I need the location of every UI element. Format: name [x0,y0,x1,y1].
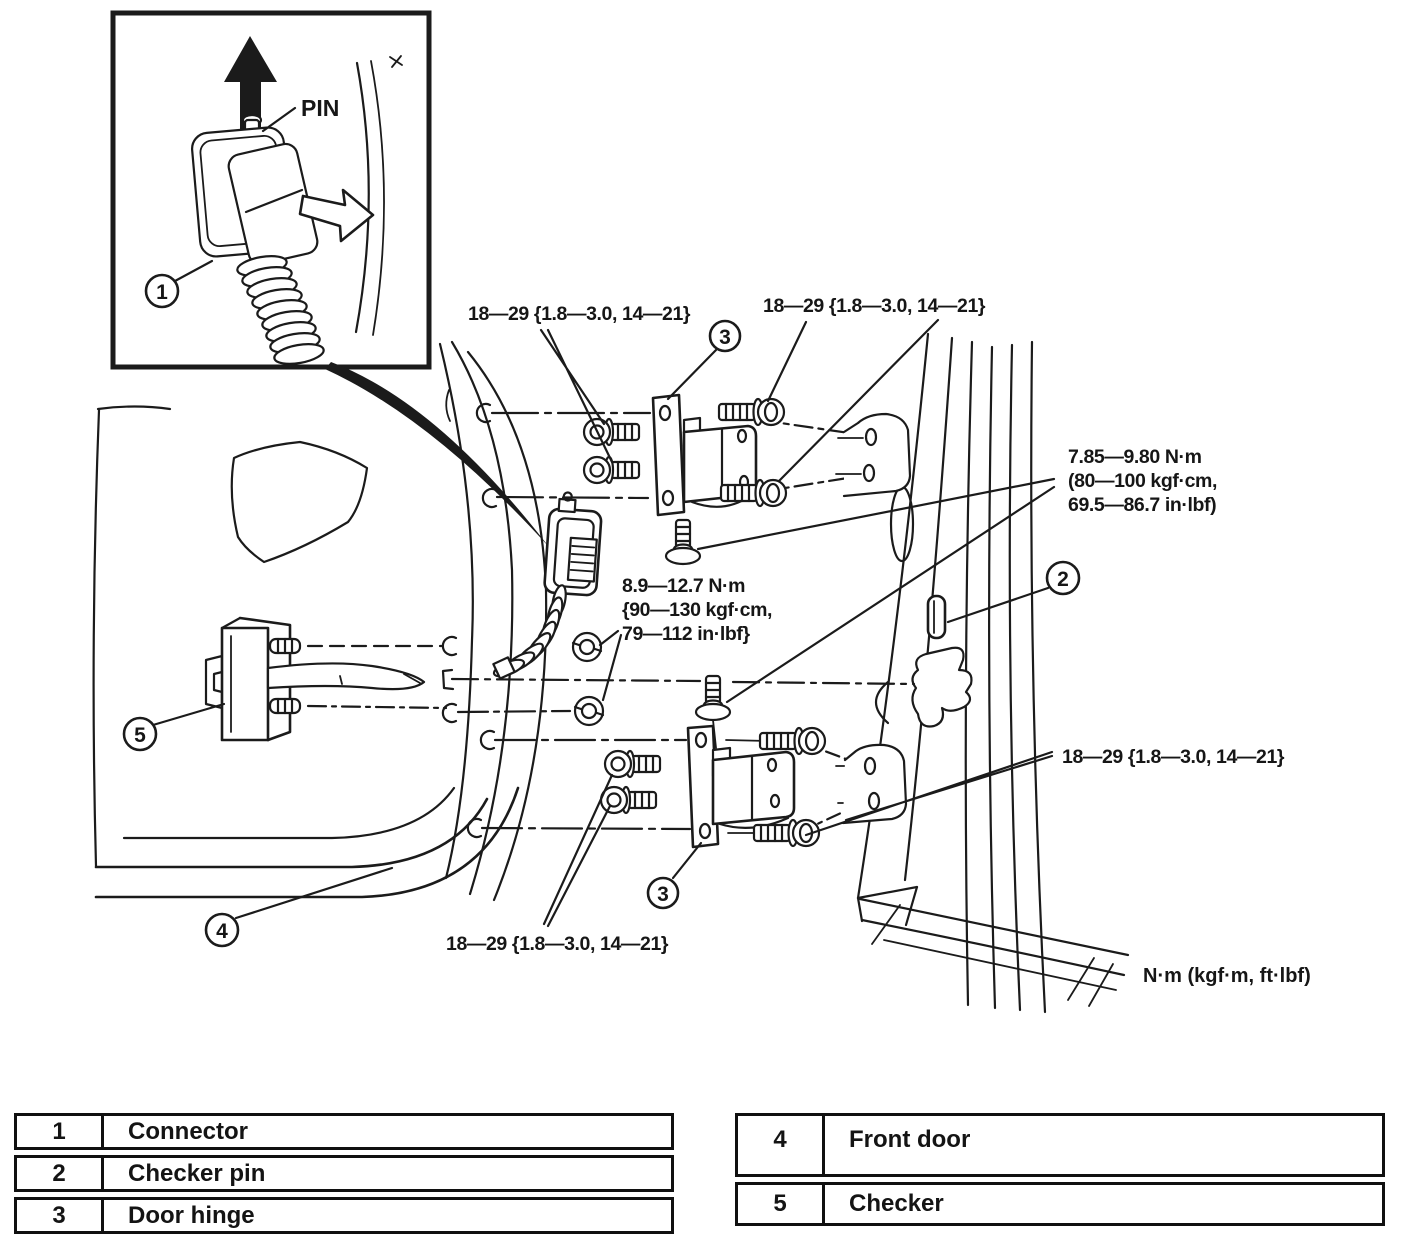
pillar-line [1031,342,1045,1012]
legend-row: 5 Checker [735,1182,1385,1226]
hinge-bolt-icon [605,751,660,777]
torque-upper-right: 18—29 {1.8—3.0, 14—21} [763,295,986,317]
checker-body [222,628,268,740]
callout-2-number: 2 [1057,568,1069,591]
door-hole-clip [443,704,456,722]
torque-checker-bolt-2: (80—100 kgf·cm, [1068,470,1217,492]
callout-leader [153,704,224,725]
checker-stud [270,639,300,653]
door-hole-clip [483,489,496,507]
tick-mark [390,56,402,67]
plate-hole [866,429,876,445]
checker-mount-bolt-icon [696,676,730,720]
pin-label: PIN [301,95,339,121]
hinge-hole [696,733,706,747]
bolt-axis-dashed [458,711,570,712]
legend-table-right: 4 Front door 5 Checker [735,1113,1385,1226]
callout-3-number: 3 [719,326,731,349]
door-face-arc [446,390,450,421]
checker-pin-drawing [928,596,945,638]
door-top-line [98,407,170,410]
callout-leader [236,868,392,918]
legend-item-label: Connector [104,1116,671,1147]
torque-checker-nut-2: {90—130 kgf·cm, [622,599,772,621]
legend-item-number: 4 [738,1116,825,1174]
checker-mount-bolt-icon [666,520,700,564]
callout-4-number: 4 [216,920,228,943]
stud-axis-dashed [308,706,446,708]
door-edge-line [356,63,369,332]
leader-line [698,479,1054,702]
door-hole-clip [468,819,481,837]
hinge-hole [700,824,710,838]
washer-nut-icon [575,697,603,725]
callout-1-number: 1 [156,281,168,304]
axis-dash-dot [452,679,700,681]
callout-leader [673,843,701,878]
plate-hole [864,465,874,481]
legend-item-number: 1 [17,1116,104,1147]
checker-stud [270,699,300,713]
hinge-hole [663,491,673,505]
hinge-bolt-icon [760,728,825,754]
leader-line [544,775,612,926]
hinge-hole [771,795,779,807]
checker-arm [268,663,424,689]
plate-hole [869,793,879,809]
legend-item-label: Checker pin [104,1158,671,1189]
inset-panel: PIN 1 [113,13,429,367]
callout-leader [668,350,716,399]
checker-drawing: 5 [124,618,446,750]
legend-row: 4 Front door [735,1113,1385,1177]
door-front-edge [94,410,99,866]
torque-lower-left: 18—29 {1.8—3.0, 14—21} [446,933,669,955]
hinge-hole [738,430,746,442]
callout-3-number: 3 [657,883,669,906]
door-hinge-face-line [468,352,546,900]
body-hinge-plate [844,414,910,496]
legend-item-label: Front door [825,1116,1382,1174]
torque-checker-bolt-1: 7.85—9.80 N·m [1068,446,1202,468]
hinge-hole [768,759,776,771]
pillar-slot [891,487,913,561]
exploded-diagram: PIN 1 4 [0,0,1408,1100]
leader-line [600,631,621,700]
door-bottom-line [124,788,454,838]
connector-terminals [568,538,597,582]
legend-item-label: Checker [825,1185,1382,1223]
door-cutout [232,442,367,562]
service-manual-page: PIN 1 4 [0,0,1408,1252]
door-hinge-face-line [452,342,512,894]
plate-hole [865,758,875,774]
washer-nut-icon [573,633,601,661]
torque-checker-nut-3: 79—112 in·lbf} [622,623,751,645]
hinge-hole [660,406,670,420]
door-edge-line [371,61,384,335]
leader-line [806,752,1052,835]
legend-table-left: 1 Connector 2 Checker pin 3 Door hinge [14,1113,674,1234]
bolt-axis-dashed [482,828,690,829]
units-note: N·m (kgf·m, ft·lbf) [1143,965,1311,987]
corrugated-tube [236,253,325,367]
checker-body-edge [222,618,240,628]
torque-checker-bolt-3: 69.5—86.7 in·lbf) [1068,494,1216,516]
door-bottom-line [96,799,487,867]
legend-item-number: 2 [17,1158,104,1189]
door-hole-clip [481,731,494,749]
door-hole-clip [443,637,456,655]
callout-5-number: 5 [134,724,146,747]
checker-clip [206,656,222,708]
legend-row: 2 Checker pin [14,1155,674,1192]
legend-row: 1 Connector [14,1113,674,1150]
torque-lower-right: 18—29 {1.8—3.0, 14—21} [1062,746,1285,768]
front-door-drawing: 4 [94,342,549,946]
legend-row: 3 Door hinge [14,1197,674,1234]
lower-hinge-drawing: 3 [601,676,906,908]
pillar-line [989,347,995,1008]
pillar-line [1010,345,1020,1010]
hinge-body [713,752,794,824]
checker-anchor-bracket [912,648,971,727]
torque-upper-left: 18—29 {1.8—3.0, 14—21} [468,303,691,325]
leader-line [541,330,612,462]
legend-item-number: 5 [738,1185,825,1223]
upper-hinge-drawing: 3 [584,321,910,564]
hinge-bolt-icon [719,399,784,425]
inset-pointer-wedge [325,362,549,547]
torque-checker-nut-1: 8.9—12.7 N·m [622,575,745,597]
callout-leader [175,261,212,281]
legend-item-label: Door hinge [104,1200,671,1231]
pin-leader-line [263,108,295,131]
legend-item-number: 3 [17,1200,104,1231]
